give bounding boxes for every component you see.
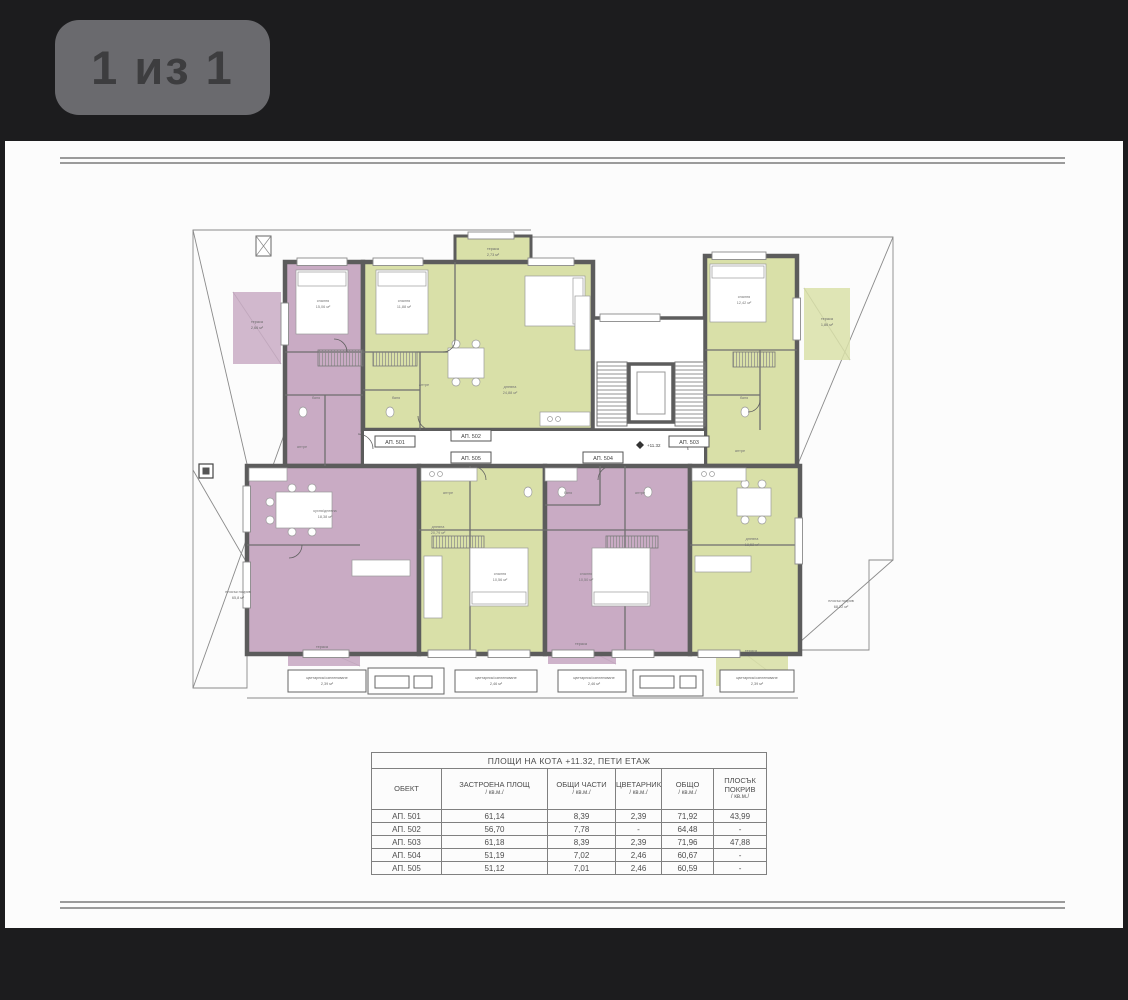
room-label: баня xyxy=(312,396,320,400)
staircase xyxy=(597,362,705,426)
room-label: антре xyxy=(735,449,745,453)
elevator-car xyxy=(637,372,665,414)
top-rule-line xyxy=(60,157,1065,159)
elevation-marker-label: +11.32 xyxy=(647,443,661,448)
table-column-header: ПЛОСЪК ПОКРИВ/ кв.м./ xyxy=(714,769,767,810)
room-label: баня xyxy=(564,491,572,495)
table-cell: 61,18 xyxy=(442,836,548,849)
table-cell: 43,99 xyxy=(714,810,767,823)
room-label: спалня xyxy=(494,572,506,576)
table-cell: АП. 503 xyxy=(372,836,442,849)
table-row: АП. 50161,148,392,3971,9243,99 xyxy=(372,810,767,823)
stair-flight-left xyxy=(597,362,627,426)
area-label: цветарник/озеленяване xyxy=(475,676,517,680)
table-cell: 51,19 xyxy=(442,849,548,862)
table-cell: АП. 502 xyxy=(372,823,442,836)
apartment-label: АП. 504 xyxy=(593,456,613,462)
table-cell: 56,70 xyxy=(442,823,548,836)
table-column-header: ЗАСТРОЕНА ПЛОЩ/ кв.м./ xyxy=(442,769,548,810)
table-cell: 61,14 xyxy=(442,810,548,823)
table-cell: - xyxy=(714,862,767,875)
area-label: 2,46 м² xyxy=(588,682,601,686)
room-label: 24,88 м² xyxy=(503,391,518,395)
area-label: 68,22 м² xyxy=(834,605,849,609)
bottom-rule-line-2 xyxy=(60,907,1065,909)
stair-flight-right xyxy=(675,362,705,426)
room-label: спалня xyxy=(580,572,592,576)
room-label: спалня xyxy=(398,299,410,303)
room-label: спалня xyxy=(738,295,750,299)
area-label: тераса xyxy=(251,320,264,324)
table-cell: 47,88 xyxy=(714,836,767,849)
table-cell: 51,12 xyxy=(442,862,548,875)
room-label: 12,42 м² xyxy=(737,301,752,305)
table-cell: 71,96 xyxy=(662,836,714,849)
apartment-label: АП. 502 xyxy=(461,434,481,440)
room-label: дневна xyxy=(746,537,760,541)
area-label: цветарник/озеленяване xyxy=(573,676,615,680)
area-label: плосък покрив xyxy=(225,590,251,594)
room-label: баня xyxy=(392,396,400,400)
areas-table: ПЛОЩИ НА КОТА +11.32, ПЕТИ ЕТАЖ ОБЕКТЗАС… xyxy=(371,752,767,875)
room-label: дневна xyxy=(504,385,518,389)
viewer-background: { "viewer": { "page_badge": "1 из 1" }, … xyxy=(0,0,1128,1000)
table-column-header: ЦВЕТАРНИК/ кв.м./ xyxy=(616,769,662,810)
table-cell: 8,39 xyxy=(548,836,616,849)
table-cell: 8,39 xyxy=(548,810,616,823)
table-cell: 7,02 xyxy=(548,849,616,862)
table-cell: 71,92 xyxy=(662,810,714,823)
room-label: спалня xyxy=(317,299,329,303)
table-cell: 64,48 xyxy=(662,823,714,836)
room-label: баня xyxy=(740,396,748,400)
table-cell: - xyxy=(714,823,767,836)
apartment-label: АП. 505 xyxy=(461,456,481,462)
table-column-header: ОБЩО/ кв.м./ xyxy=(662,769,714,810)
room-label: 18,52 м² xyxy=(745,543,760,547)
area-label: плосък покрив xyxy=(828,599,854,603)
room-label: дневна xyxy=(432,525,446,529)
table-row: АП. 50256,707,78-64,48- xyxy=(372,823,767,836)
room-label: кухня/дневна xyxy=(313,509,337,513)
table-cell: 60,67 xyxy=(662,849,714,862)
area-label: цветарник/озеленяване xyxy=(306,676,348,680)
area-label: 1,86 м² xyxy=(821,323,834,327)
table-cell: 2,46 xyxy=(616,849,662,862)
room-label: антре xyxy=(297,445,307,449)
apartment-label: АП. 501 xyxy=(385,440,405,446)
area-label: 2,39 м² xyxy=(321,682,334,686)
table-cell: АП. 501 xyxy=(372,810,442,823)
top-rule-line-2 xyxy=(60,162,1065,164)
room-label: 10,56 м² xyxy=(493,578,508,582)
area-label: цветарник/озеленяване xyxy=(736,676,778,680)
table-cell: - xyxy=(714,849,767,862)
area-label: 2,73 м² xyxy=(487,253,500,257)
floorplan-svg: +11.32 АП. 501АП. 502АП. 505АП. 504АП. 5… xyxy=(185,215,905,715)
room-label: 10,50 м² xyxy=(579,578,594,582)
room-label: 15,06 м² xyxy=(316,305,331,309)
table-row: АП. 50551,127,012,4660,59- xyxy=(372,862,767,875)
area-label: тераса xyxy=(487,247,500,251)
room-label: антре xyxy=(635,491,645,495)
area-label: тераса xyxy=(575,642,588,646)
room-label: антре xyxy=(443,491,453,495)
area-label: 65,8 м² xyxy=(232,596,245,600)
table-cell: 2,39 xyxy=(616,836,662,849)
bottom-rule-line xyxy=(60,901,1065,903)
apartment-label: АП. 503 xyxy=(679,440,699,446)
area-label: тераса xyxy=(821,317,834,321)
table-cell: АП. 505 xyxy=(372,862,442,875)
corridor xyxy=(363,430,705,466)
table-cell: 2,46 xyxy=(616,862,662,875)
area-label: тераса xyxy=(745,649,758,653)
table-cell: АП. 504 xyxy=(372,849,442,862)
table-row: АП. 50361,188,392,3971,9647,88 xyxy=(372,836,767,849)
room-label: 20,79 м² xyxy=(431,531,446,535)
areas-table-title: ПЛОЩИ НА КОТА +11.32, ПЕТИ ЕТАЖ xyxy=(372,753,767,769)
table-column-header: ОБЩИ ЧАСТИ/ кв.м./ xyxy=(548,769,616,810)
page-counter-badge: 1 из 1 xyxy=(55,20,270,115)
room-label: 11,88 м² xyxy=(397,305,412,309)
table-column-header: ОБЕКТ xyxy=(372,769,442,810)
room-label: антре xyxy=(419,383,429,387)
table-cell: 7,78 xyxy=(548,823,616,836)
table-cell: 60,59 xyxy=(662,862,714,875)
table-cell: 7,01 xyxy=(548,862,616,875)
table-cell: - xyxy=(616,823,662,836)
area-label: 2,39 м² xyxy=(751,682,764,686)
area-label: 2,66 м² xyxy=(251,326,264,330)
drawing-sheet[interactable]: +11.32 АП. 501АП. 502АП. 505АП. 504АП. 5… xyxy=(5,141,1123,928)
table-row: АП. 50451,197,022,4660,67- xyxy=(372,849,767,862)
area-label: тераса xyxy=(316,645,329,649)
room-label: 18,38 м² xyxy=(318,515,333,519)
table-cell: 2,39 xyxy=(616,810,662,823)
area-label: 2,46 м² xyxy=(490,682,503,686)
floorplan-drawing: +11.32 АП. 501АП. 502АП. 505АП. 504АП. 5… xyxy=(185,215,905,715)
